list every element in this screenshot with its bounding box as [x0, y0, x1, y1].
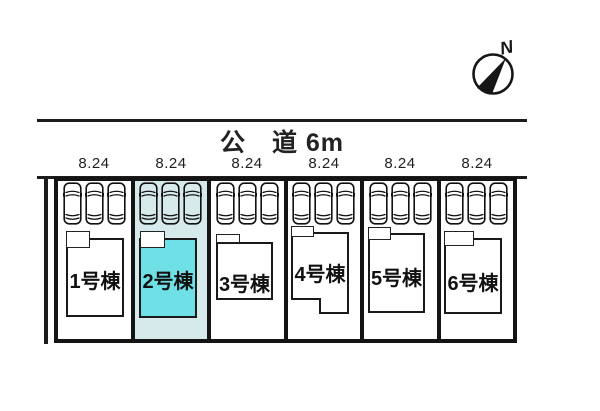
- car-icon: [107, 182, 126, 225]
- parking-row: [58, 182, 131, 225]
- porch-rect: [444, 231, 474, 246]
- lot-6: 6号棟: [441, 181, 514, 339]
- porch-rect: [368, 227, 391, 240]
- lot-divider: [284, 181, 288, 339]
- parking-row: [364, 182, 437, 225]
- building-extension: [319, 298, 349, 314]
- parking-row: [211, 182, 284, 225]
- building-label: 4号棟: [291, 258, 349, 287]
- lot-3: 3号棟: [211, 181, 284, 339]
- lot-divider: [131, 181, 135, 339]
- porch-rect: [291, 226, 314, 237]
- car-icon: [292, 182, 311, 225]
- parking-row: [288, 182, 361, 225]
- lot-1: 1号棟: [58, 181, 131, 339]
- car-icon: [183, 182, 202, 225]
- lot-2: 2号棟: [135, 181, 208, 339]
- compass: N: [464, 32, 528, 102]
- dimension-label: 8.24: [447, 155, 507, 172]
- car-icon: [85, 182, 104, 225]
- car-icon: [467, 182, 486, 225]
- dimension-label: 8.24: [294, 155, 354, 172]
- car-icon: [489, 182, 508, 225]
- parking-row: [135, 182, 208, 225]
- dimension-label: 8.24: [64, 155, 124, 172]
- car-icon: [161, 182, 180, 225]
- car-icon: [260, 182, 279, 225]
- building-label: 6号棟: [444, 267, 502, 296]
- lot-4: 4号棟: [288, 181, 361, 339]
- building-label: 1号棟: [66, 265, 124, 294]
- car-icon: [314, 182, 333, 225]
- car-icon: [445, 182, 464, 225]
- building-label: 2号棟: [139, 265, 197, 294]
- porch-rect: [216, 234, 240, 243]
- building-label: 5号棟: [368, 262, 425, 291]
- car-icon: [238, 182, 257, 225]
- lot-divider: [437, 181, 441, 339]
- car-icon: [391, 182, 410, 225]
- site-boundary-line: [44, 177, 48, 344]
- parking-row: [441, 182, 514, 225]
- lot-divider: [207, 181, 211, 339]
- porch-rect: [66, 231, 90, 248]
- car-icon: [216, 182, 235, 225]
- car-icon: [369, 182, 388, 225]
- car-icon: [413, 182, 432, 225]
- building-label: 3号棟: [216, 268, 273, 297]
- lot-5: 5号棟: [364, 181, 437, 339]
- car-icon: [336, 182, 355, 225]
- compass-needle-icon: [474, 55, 513, 95]
- dimension-label: 8.24: [217, 155, 277, 172]
- porch-rect: [140, 231, 165, 248]
- dimension-label: 8.24: [141, 155, 201, 172]
- road-label: 公 道 6m: [37, 123, 527, 159]
- site-plan: N 公 道 6m 8.24 8.24 8.24 8.24 8.24 8.24 1…: [0, 0, 600, 411]
- compass-label: N: [498, 36, 516, 58]
- lot-divider: [360, 181, 364, 339]
- car-icon: [139, 182, 158, 225]
- dimension-label: 8.24: [370, 155, 430, 172]
- road-top-line: [37, 119, 527, 122]
- car-icon: [63, 182, 82, 225]
